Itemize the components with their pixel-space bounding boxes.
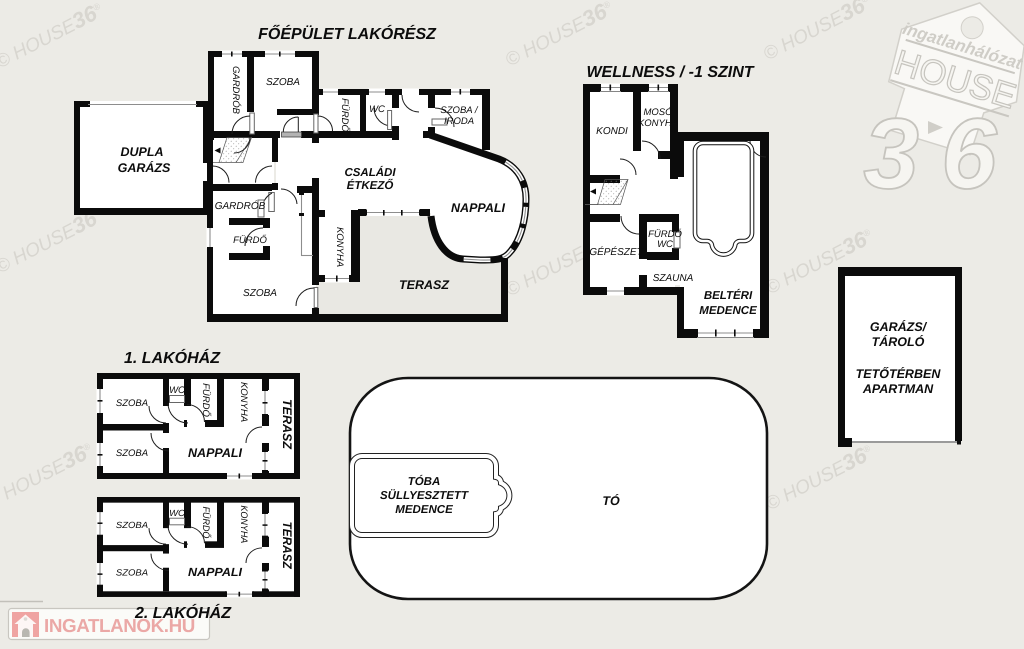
svg-text:SZOBA /: SZOBA / <box>440 105 478 116</box>
svg-text:IRODA: IRODA <box>444 116 474 127</box>
svg-text:SZOBA: SZOBA <box>116 398 148 409</box>
svg-text:SZOBA: SZOBA <box>266 77 300 88</box>
svg-text:GARÁZS/: GARÁZS/ <box>870 319 928 334</box>
svg-text:TÓBA: TÓBA <box>408 474 441 488</box>
svg-text:SZOBA: SZOBA <box>116 448 148 459</box>
svg-text:APARTMAN: APARTMAN <box>862 382 934 396</box>
svg-text:GARDRÓB: GARDRÓB <box>230 66 242 115</box>
svg-text:MOSÓ: MOSÓ <box>643 106 673 118</box>
svg-text:KONYHA: KONYHA <box>334 227 345 267</box>
svg-text:KONYHA: KONYHA <box>638 118 678 129</box>
svg-text:GARÁZS: GARÁZS <box>118 160 171 175</box>
svg-text:FŐÉPÜLET LAKÓRÉSZ: FŐÉPÜLET LAKÓRÉSZ <box>258 24 437 43</box>
svg-text:CSALÁDI: CSALÁDI <box>344 165 396 179</box>
svg-text:WC: WC <box>169 385 185 396</box>
svg-text:TERASZ: TERASZ <box>280 399 294 450</box>
svg-text:TÁROLÓ: TÁROLÓ <box>872 334 925 349</box>
svg-text:WELLNESS / -1 SZINT: WELLNESS / -1 SZINT <box>586 64 754 81</box>
svg-text:WC: WC <box>657 239 673 250</box>
svg-text:NAPPALI: NAPPALI <box>188 446 242 460</box>
svg-text:KONYHA: KONYHA <box>238 382 249 422</box>
svg-text:TETŐTÉRBEN: TETŐTÉRBEN <box>856 366 942 381</box>
svg-text:KONDI: KONDI <box>596 126 628 137</box>
svg-text:FÜRDŐ: FÜRDŐ <box>233 234 267 246</box>
svg-text:MEDENCE: MEDENCE <box>395 504 453 516</box>
svg-text:GARDRÓB: GARDRÓB <box>215 200 266 212</box>
svg-text:SZAUNA: SZAUNA <box>653 273 694 284</box>
svg-text:36: 36 <box>863 98 1018 210</box>
svg-text:FÜRDŐ: FÜRDŐ <box>339 98 351 132</box>
svg-text:FÜRDŐ: FÜRDŐ <box>200 383 212 417</box>
svg-text:SZOBA: SZOBA <box>243 288 277 299</box>
svg-text:SÜLLYESZTETT: SÜLLYESZTETT <box>380 489 469 502</box>
svg-text:MEDENCE: MEDENCE <box>699 305 757 317</box>
svg-text:BELTÉRI: BELTÉRI <box>704 288 753 302</box>
svg-text:2. LAKÓHÁZ: 2. LAKÓHÁZ <box>134 603 232 622</box>
svg-text:GÉPÉSZET: GÉPÉSZET <box>589 246 643 258</box>
svg-text:DUPLA: DUPLA <box>120 145 163 159</box>
svg-text:1. LAKÓHÁZ: 1. LAKÓHÁZ <box>124 348 221 367</box>
svg-text:TÓ: TÓ <box>602 493 620 508</box>
svg-text:TERASZ: TERASZ <box>399 278 450 292</box>
svg-text:ÉTKEZŐ: ÉTKEZŐ <box>347 178 394 192</box>
svg-text:NAPPALI: NAPPALI <box>451 201 505 215</box>
svg-text:WC: WC <box>369 104 385 115</box>
